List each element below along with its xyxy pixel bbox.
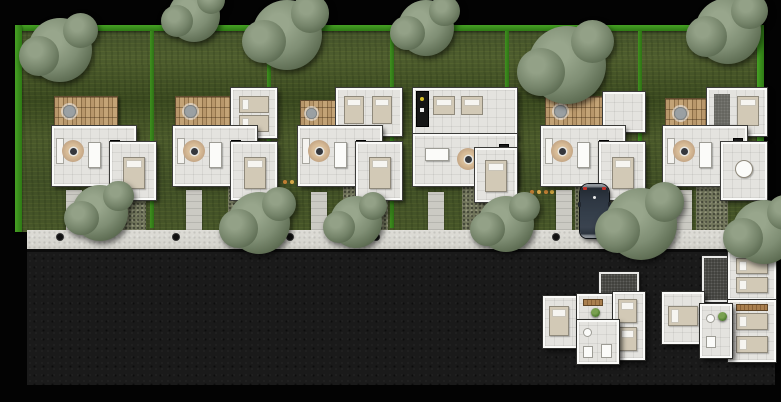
round-rug (183, 140, 205, 162)
wardrobe (583, 299, 603, 306)
round-rug (62, 140, 84, 162)
dining-block (721, 142, 767, 200)
tree (528, 26, 606, 104)
house-4 (413, 88, 513, 200)
gravel-patio (714, 94, 730, 126)
bed (618, 299, 637, 323)
gravel-patio (702, 256, 730, 302)
bed (549, 306, 569, 336)
bed (433, 96, 455, 115)
bed (618, 327, 637, 351)
bed (372, 96, 392, 124)
round-rug (551, 140, 573, 162)
bed (239, 96, 269, 113)
tree (252, 0, 322, 70)
bed (369, 157, 391, 189)
kitchen-island (699, 142, 712, 168)
wood-deck (54, 96, 118, 128)
shower (601, 344, 612, 358)
tree (28, 18, 92, 82)
bed (736, 336, 768, 353)
patio-table (674, 107, 687, 120)
wood-deck (175, 96, 231, 128)
tree (72, 185, 128, 241)
tree (605, 188, 677, 260)
wood-deck (300, 100, 338, 128)
sidewalk-marker (287, 234, 293, 240)
kitchen-island (425, 148, 449, 161)
bed (485, 160, 507, 192)
house-3 (298, 88, 398, 200)
sidewalk-marker (553, 234, 559, 240)
house-2 (173, 88, 273, 200)
patio-table (306, 108, 317, 119)
house-6 (663, 88, 763, 200)
bed (244, 157, 266, 189)
bed (736, 277, 768, 293)
bed (668, 306, 698, 326)
bed (461, 96, 483, 115)
kitchen-counter (416, 91, 429, 127)
kitchen-island (209, 142, 222, 168)
bedroom (662, 292, 704, 344)
unit-plan-2 (662, 252, 774, 364)
sink (583, 328, 592, 337)
unit-plan-1 (543, 258, 641, 362)
toilet (706, 336, 716, 348)
bedroom-block (356, 142, 402, 200)
site-plan-canvas (0, 0, 781, 402)
bedroom-block (475, 148, 517, 202)
bed (737, 96, 759, 126)
wardrobe (736, 304, 768, 311)
tree (330, 196, 382, 248)
tree (398, 0, 454, 56)
car-mirrors (578, 202, 581, 207)
house-1 (52, 88, 152, 200)
patio-table (63, 105, 76, 118)
patio-table (554, 105, 567, 118)
tree (478, 196, 534, 252)
sidewalk-marker (57, 234, 63, 240)
tree (228, 192, 290, 254)
patio-table (184, 105, 197, 118)
sidewalk-marker (173, 234, 179, 240)
round-rug (673, 140, 695, 162)
bedroom (543, 296, 581, 348)
round-table (735, 160, 753, 178)
toilet (583, 346, 593, 358)
bathroom (577, 320, 619, 364)
bed (344, 96, 364, 124)
tree (695, 0, 761, 64)
bed (612, 157, 634, 189)
sink (706, 314, 715, 323)
kitchen-island (577, 142, 590, 168)
tree (732, 200, 781, 264)
bedroom (728, 300, 776, 362)
potted-plant (718, 312, 727, 321)
potted-plant (591, 308, 600, 317)
bathroom (700, 304, 732, 358)
kitchen-island (334, 142, 347, 168)
bed (736, 313, 768, 330)
kitchen-island (88, 142, 101, 168)
round-rug (308, 140, 330, 162)
